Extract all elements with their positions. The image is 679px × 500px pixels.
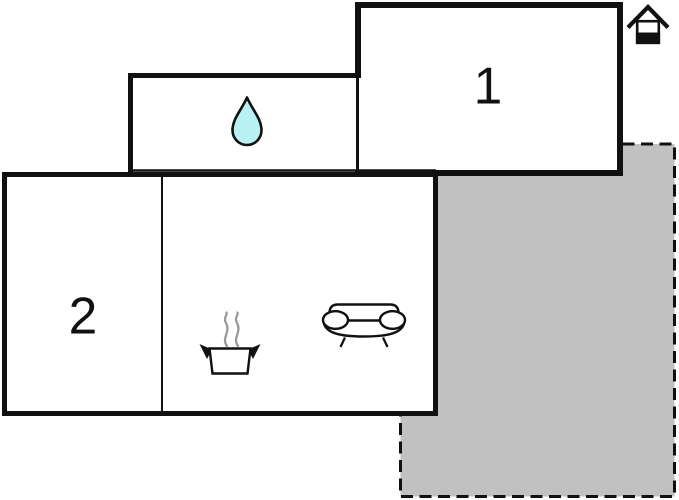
room-2-label: 2 xyxy=(69,287,98,345)
floor-plan: 1 2 xyxy=(0,0,679,500)
terrace xyxy=(401,144,675,497)
floor-plan-drawing: 1 2 xyxy=(0,0,679,500)
room-1-label: 1 xyxy=(474,57,503,115)
house-body-lower xyxy=(636,33,660,45)
pot-body xyxy=(210,349,251,374)
sofa-armrest-left xyxy=(323,311,348,329)
terrace-area xyxy=(401,144,675,497)
sofa-armrest-right xyxy=(380,311,405,329)
house-entrance-icon xyxy=(628,7,668,44)
